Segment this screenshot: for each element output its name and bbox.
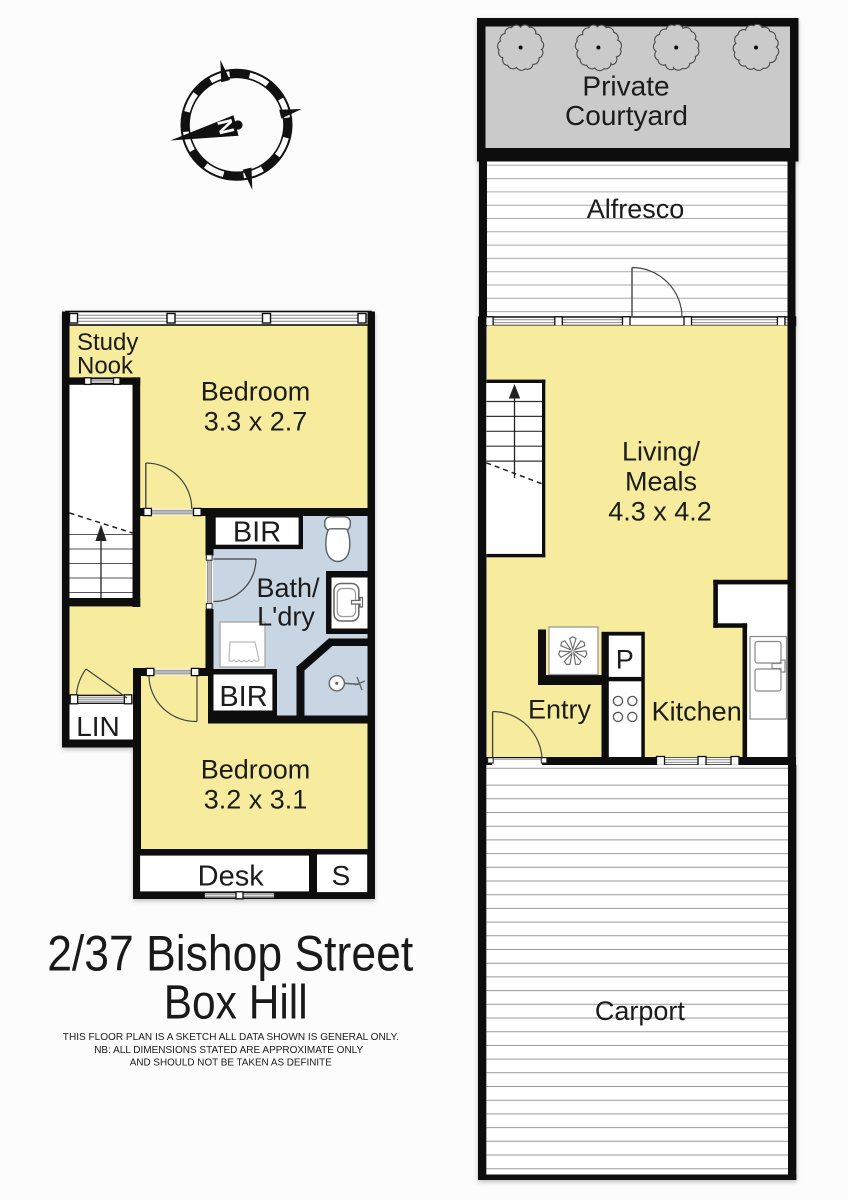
svg-text:Bedroom: Bedroom	[201, 755, 311, 785]
svg-text:Desk: Desk	[198, 861, 265, 893]
svg-text:Bedroom: Bedroom	[201, 377, 311, 407]
svg-text:LIN: LIN	[76, 711, 120, 742]
svg-text:BIR: BIR	[219, 681, 267, 713]
svg-text:Meals: Meals	[625, 467, 697, 497]
svg-text:P: P	[616, 645, 634, 675]
svg-text:Kitchen: Kitchen	[652, 696, 742, 726]
svg-text:NB: ALL DIMENSIONS STATED ARE: NB: ALL DIMENSIONS STATED ARE APPROXIMAT…	[94, 1045, 363, 1056]
svg-text:2/37 Bishop Street: 2/37 Bishop Street	[47, 925, 413, 981]
svg-text:S: S	[332, 860, 351, 891]
svg-text:Alfresco: Alfresco	[587, 194, 685, 224]
svg-text:Courtyard: Courtyard	[565, 100, 688, 131]
svg-text:3.3 x 2.7: 3.3 x 2.7	[204, 407, 308, 437]
svg-text:Entry: Entry	[528, 695, 592, 725]
svg-text:L'dry: L'dry	[257, 602, 315, 632]
svg-text:THIS FLOOR PLAN IS A SKETCH AL: THIS FLOOR PLAN IS A SKETCH ALL DATA SHO…	[63, 1032, 399, 1043]
svg-text:Private: Private	[582, 71, 669, 102]
svg-text:Bath/: Bath/	[256, 573, 320, 603]
svg-text:Living/: Living/	[622, 437, 701, 467]
svg-text:BIR: BIR	[233, 517, 281, 549]
svg-text:Carport: Carport	[595, 996, 686, 1026]
svg-text:AND SHOULD NOT BE TAKEN AS DEF: AND SHOULD NOT BE TAKEN AS DEFINITE	[130, 1057, 332, 1068]
svg-text:Box Hill: Box Hill	[164, 975, 308, 1029]
svg-text:4.3 x 4.2: 4.3 x 4.2	[608, 497, 712, 527]
svg-text:3.2 x 3.1: 3.2 x 3.1	[204, 785, 308, 815]
svg-text:Nook: Nook	[77, 353, 134, 380]
